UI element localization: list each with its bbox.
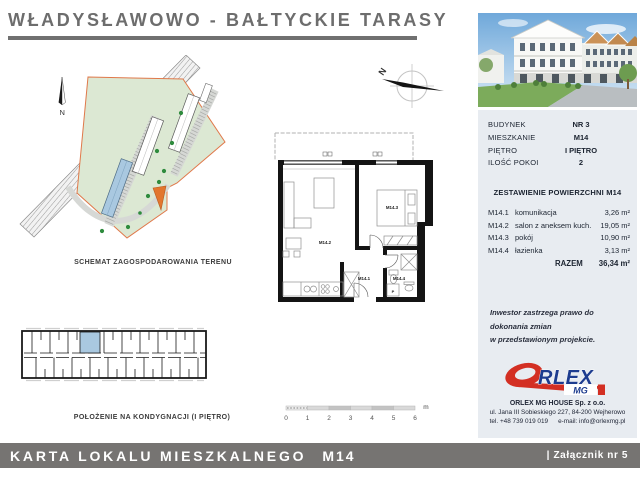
site-plan-drawing: N [10, 55, 235, 255]
walls [278, 160, 433, 302]
building-rendering [478, 13, 637, 107]
disclaimer-text: Inwestor zastrzega prawo do dokonania zm… [490, 306, 631, 347]
area-row: M14.2 salon z aneksem kuch. 19,05 m² [488, 220, 630, 233]
room-label-hall: M14.1 [358, 276, 371, 281]
key-plan-drawing [20, 326, 210, 386]
detail-row-rooms: ILOŚĆ POKOI 2 [488, 157, 631, 170]
apartment-card-page: WŁADYSŁAWOWO - BAŁTYCKIE TARASY N [0, 0, 640, 480]
scale-unit-label: m [423, 404, 428, 411]
room-label-living: M14.2 [319, 240, 332, 245]
footer-unit-number: M14 [322, 448, 355, 464]
room-label-bath: M14.4 [393, 276, 406, 281]
scale-bar: 0 1 2 3 4 5 6 m [280, 396, 438, 426]
footer-attachment-label: | Załącznik nr 5 [547, 450, 628, 461]
page-title: WŁADYSŁAWOWO - BAŁTYCKIE TARASY [8, 10, 448, 31]
orlex-logo: RLEX MG [502, 356, 614, 398]
footer-title: KARTA LOKALU MIESZKALNEGO [10, 448, 306, 464]
area-row: M14.4 łazienka 3,13 m² [488, 245, 630, 258]
washer-label: P [392, 289, 395, 294]
room-label-room: M14.3 [386, 205, 399, 210]
site-plan-caption: SCHEMAT ZAGOSPODAROWANIA TERENU [58, 259, 248, 266]
svg-text:5: 5 [392, 415, 396, 422]
key-plan-caption: POŁOŻENIE NA KONDYGNACJI (I PIĘTRO) [57, 414, 247, 421]
svg-text:0: 0 [284, 415, 288, 422]
company-address: ul. Jana III Sobieskiego 227, 84-200 Wej… [478, 409, 637, 416]
area-total-row: RAZEM 36,34 m² [488, 259, 630, 268]
company-name: ORLEX MG HOUSE Sp. z o.o. [478, 400, 637, 407]
svg-text:3: 3 [349, 415, 353, 422]
area-row: M14.3 pokój 10,90 m² [488, 232, 630, 245]
svg-text:2: 2 [327, 415, 331, 422]
company-email: e-mail: info@orlexmg.pl [558, 418, 625, 425]
svg-text:N: N [60, 108, 65, 117]
company-phone: tel. +48 739 019 019 [490, 418, 548, 425]
footer-bar: KARTA LOKALU MIESZKALNEGO M14 | Załączni… [0, 443, 640, 468]
apartment-floor-plan: M14.2 M14.3 M14.1 M14.4 P [257, 112, 442, 312]
detail-row-apartment: MIESZKANIE M14 [488, 132, 631, 145]
terrace-outline [275, 133, 413, 161]
detail-row-floor: PIĘTRO I PIĘTRO [488, 145, 631, 158]
highlighted-unit [80, 332, 100, 353]
detail-row-building: BUDYNEK NR 3 [488, 119, 631, 132]
info-panel: BUDYNEK NR 3 MIESZKANIE M14 PIĘTRO I PIĘ… [478, 110, 637, 438]
title-underline [8, 36, 417, 40]
unit-details: BUDYNEK NR 3 MIESZKANIE M14 PIĘTRO I PIĘ… [488, 119, 631, 170]
svg-text:N: N [376, 66, 388, 77]
company-contact: tel. +48 739 019 019e-mail: info@orlexmg… [478, 418, 637, 425]
svg-text:1: 1 [306, 415, 310, 422]
north-arrow-icon: N [59, 77, 66, 117]
area-table: M14.1 komunikacja 3,26 m² M14.2 salon z … [488, 207, 630, 257]
svg-text:6: 6 [413, 415, 417, 422]
logo-sub-text: MG [573, 386, 588, 396]
svg-text:4: 4 [370, 415, 374, 422]
compass-icon: N [372, 56, 448, 120]
area-table-title: ZESTAWIENIE POWIERZCHNI M14 [478, 188, 637, 197]
area-row: M14.1 komunikacja 3,26 m² [488, 207, 630, 220]
